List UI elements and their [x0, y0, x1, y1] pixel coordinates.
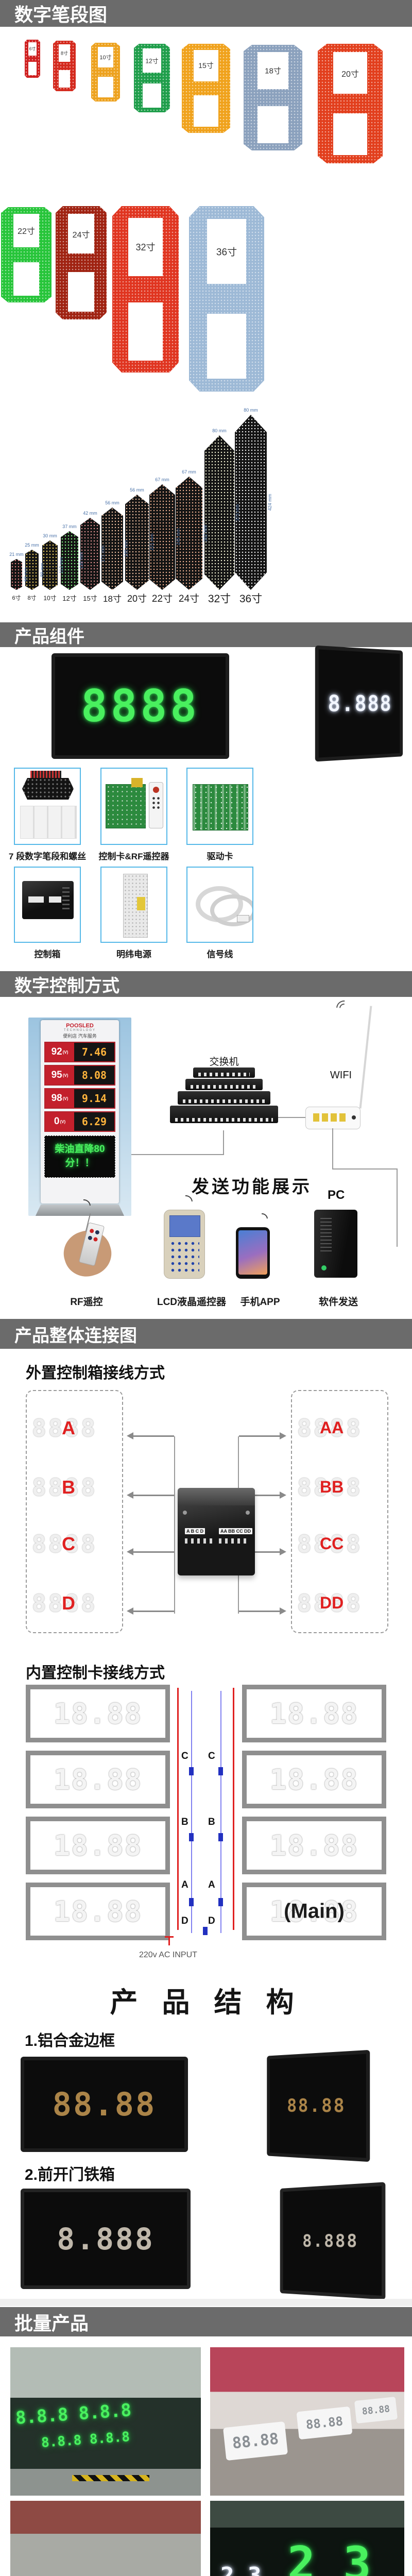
- bar-width-label: 80 mm: [212, 428, 227, 433]
- digit-window: [143, 83, 161, 108]
- bar-size-label: 8寸: [27, 594, 36, 602]
- segment-digit-10in: 10寸: [91, 43, 120, 101]
- red-wire: [233, 1688, 234, 1930]
- sign-digits: 88.88: [231, 2430, 279, 2452]
- section-header-connection: 产品整体连接图: [0, 1319, 412, 1349]
- display-label-AA: AA: [320, 1418, 344, 1437]
- section-header-control: 数字控制方式: [0, 971, 412, 997]
- cabinet-label: [49, 896, 61, 903]
- fuel-grade: 0(V): [45, 1112, 74, 1131]
- bar-width-label: 30 mm: [43, 533, 57, 538]
- digit-window: [68, 272, 95, 312]
- wire-label: A: [181, 1879, 188, 1891]
- arrow-to-C: [130, 1551, 174, 1553]
- batch-photo-big-green-digits: 2 3 2 3 2 3: [210, 2501, 404, 2576]
- totem-column: POOSLED TECHNOLOGY 便利店 汽车服务 92(V) 7.46 9…: [41, 1020, 119, 1204]
- section-title: 产品组件: [14, 622, 84, 648]
- pc-tower-photo: [314, 1210, 357, 1278]
- wire-line: [278, 1117, 305, 1118]
- driver-card-image: [193, 784, 248, 831]
- section-title: 数字控制方式: [14, 972, 119, 997]
- rf-remote-image: [149, 782, 163, 828]
- digit-window: [333, 113, 367, 155]
- totem-logo-area: POOSLED TECHNOLOGY 便利店 汽车服务: [41, 1020, 119, 1039]
- chart-bar-6in: [11, 559, 22, 590]
- component-caption: 控制卡&RF遥控器: [99, 849, 169, 862]
- bar-size-label: 10寸: [43, 594, 56, 602]
- white-sign: 88.88: [296, 2406, 352, 2440]
- display-label-B: B: [62, 1477, 75, 1498]
- component-box-driver-card: [186, 768, 253, 845]
- digit-window: 24寸: [68, 214, 95, 253]
- segment-digit-8in: 8寸: [53, 41, 76, 91]
- white-led-digits: 8.888: [328, 690, 392, 717]
- send-function-title: 发送功能展示: [192, 1173, 312, 1198]
- power-wire: [165, 1936, 174, 1938]
- gas-price-totem-photo: POOSLED TECHNOLOGY 便利店 汽车服务 92(V) 7.46 9…: [28, 1018, 131, 1216]
- display-label-D: D: [62, 1592, 75, 1614]
- router-antenna: [359, 1006, 372, 1108]
- sender-label: RF遥控: [70, 1294, 102, 1308]
- bar-width-label: 67 mm: [182, 469, 196, 474]
- bar-height-label: 135 mm: [79, 552, 84, 569]
- component-caption: 控制箱: [35, 947, 61, 960]
- remote-button: [93, 1237, 98, 1242]
- digit-size-label: 24寸: [73, 228, 90, 240]
- switch-ports: [191, 1085, 257, 1089]
- bar-height-label: 89 mm: [40, 563, 45, 577]
- digit-window: 10寸: [98, 47, 113, 67]
- arrow-to-A: [130, 1435, 174, 1437]
- segment-digit-20in: 20寸: [318, 44, 383, 163]
- bar-size-label: 20寸: [127, 591, 147, 605]
- wire-connector: [189, 1833, 194, 1841]
- switch-unit: [170, 1106, 278, 1123]
- digit-size-label: 22寸: [18, 224, 35, 236]
- wire-label: C: [181, 1751, 188, 1762]
- wire-line: [223, 1130, 224, 1155]
- router-led: [352, 1115, 356, 1120]
- pc-label: PC: [328, 1188, 345, 1202]
- led-digits: 8.8.8 8.8.8: [15, 2400, 132, 2429]
- display-panel: 18.88: [26, 1751, 170, 1808]
- lcd-remote-photo: [164, 1210, 205, 1279]
- wire-label: B: [208, 1817, 215, 1828]
- wifi-router-image: [305, 1107, 360, 1129]
- control-card-image: [106, 784, 146, 828]
- remote-button: [153, 787, 159, 793]
- power-input-label: 220v AC INPUT: [139, 1951, 197, 1960]
- network-switch-stack: [170, 1067, 278, 1130]
- component-caption: 明纬电源: [116, 947, 151, 960]
- section-title: 数字笔段图: [14, 0, 107, 27]
- chart-bar-36in: [235, 415, 267, 590]
- display-row-AA: 8888 AA: [297, 1414, 380, 1448]
- display-row-DD: 8888 DD: [297, 1589, 380, 1623]
- segment-digit-24in: 24寸: [56, 206, 107, 319]
- wire-label: C: [208, 1751, 215, 1762]
- switch-ports: [198, 1073, 250, 1076]
- digit-size-label: 10寸: [99, 53, 111, 61]
- bar-width-label: 37 mm: [62, 524, 77, 529]
- wire-trunk-left: [174, 1436, 175, 1614]
- fuel-price: 8.08: [74, 1066, 114, 1084]
- component-box-control-cabinet: [14, 867, 81, 943]
- wire-label: D: [208, 1916, 215, 1927]
- green-led-display: 8888: [51, 653, 229, 759]
- power-supply-image: [123, 874, 148, 938]
- internal-wiring-title: 内置控制卡接线方式: [26, 1660, 165, 1683]
- fuel-price: 6.29: [74, 1112, 114, 1131]
- switch-unit: [178, 1091, 270, 1105]
- structure-sub1: 1.铝合金边框: [25, 2028, 115, 2050]
- switch-ports: [183, 1099, 265, 1103]
- display-label-A: A: [62, 1417, 75, 1439]
- panel-digits: 18.88: [54, 1829, 143, 1862]
- rj45-connector: [237, 915, 249, 922]
- segment-digit-15in: 15寸: [182, 44, 230, 133]
- batch-photo-amber-digits: 3.2 1 8.8 3.2 1 8.8: [10, 2501, 201, 2576]
- section-title: 产品整体连接图: [14, 1321, 137, 1347]
- switch-label: 交换机: [209, 1054, 238, 1068]
- component-caption: 驱动卡: [207, 849, 233, 862]
- display-row-B: 8888 B: [32, 1473, 114, 1507]
- display-label-BB: BB: [320, 1478, 344, 1497]
- fuel-price: 7.46: [74, 1043, 114, 1061]
- wire-connector: [218, 1833, 223, 1841]
- panel-digits: 18.88: [54, 1764, 143, 1796]
- bar-width-label: 80 mm: [244, 408, 258, 413]
- bar-width-label: 56 mm: [105, 500, 119, 505]
- unlit-digits: 8.888: [57, 2222, 154, 2257]
- product-detail-page: 数字笔段图 6寸 8寸 10寸 12寸 15寸 18寸 20寸 22寸 24寸 …: [0, 0, 412, 2576]
- iron-box-front-photo: 8.888: [21, 2189, 191, 2289]
- panel-digits: 18.88: [270, 1698, 359, 1730]
- led-message-line1: 柴油直降80: [45, 1141, 115, 1155]
- remote-button: [89, 1228, 94, 1233]
- fuel-grade: 95(V): [45, 1066, 74, 1084]
- ports-right: [219, 1538, 248, 1544]
- white-sign: 88.88: [223, 2421, 288, 2461]
- wire-connector: [218, 1898, 223, 1906]
- divider: [0, 2299, 412, 2306]
- digit-size-label: 8寸: [61, 50, 68, 57]
- price-row: 0(V) 6.29: [44, 1111, 115, 1132]
- screw-bags-image: [20, 806, 77, 839]
- screw: [183, 1511, 187, 1515]
- segment-digit-12in: 12寸: [134, 44, 170, 112]
- lcd-screen: [169, 1215, 200, 1237]
- unlit-digits: 8.888: [302, 2230, 358, 2251]
- external-wiring-title: 外置控制箱接线方式: [26, 1360, 165, 1383]
- white-sign: 88.88: [354, 2397, 398, 2424]
- totem-brand: POOSLED: [41, 1023, 119, 1029]
- component-box-signal-cable: [186, 867, 253, 943]
- remote-buttons: [151, 796, 161, 809]
- remote-button: [88, 1235, 93, 1241]
- digit-window: 32寸: [128, 218, 163, 276]
- bar-height-label: 262 mm: [203, 525, 208, 542]
- wire-connector: [189, 1767, 194, 1775]
- component-caption: 信号线: [207, 947, 233, 960]
- bar-size-label: 12寸: [62, 593, 76, 603]
- wire-connector: [203, 1927, 208, 1935]
- aluminum-frame-side-photo: 88.88: [267, 2050, 370, 2162]
- display-panel-main: 18.88 (Main): [242, 1883, 386, 1940]
- bar-height-label: 221 mm: [149, 534, 154, 551]
- digit-window: 8寸: [59, 44, 71, 62]
- phone-screen: [238, 1230, 267, 1275]
- price-row: 98(V) 9.14: [44, 1088, 115, 1109]
- aluminum-frame-front-photo: 88.88: [21, 2057, 188, 2152]
- switch-unit: [185, 1079, 263, 1090]
- rf-remote-photo: [61, 1213, 120, 1278]
- digit-window: 18寸: [257, 52, 288, 89]
- totem-brand-sub: TECHNOLOGY: [41, 1029, 119, 1032]
- bar-size-label: 32寸: [208, 590, 231, 606]
- digit-size-label: 32寸: [135, 240, 155, 253]
- led-digits: 2 3: [287, 2537, 371, 2576]
- bar-size-label: 18寸: [103, 591, 122, 604]
- bar-size-label: 22寸: [152, 591, 173, 605]
- port-label-left: A B C D: [185, 1528, 205, 1534]
- screw: [246, 1511, 250, 1515]
- segment-digit-6in: 6寸: [25, 40, 40, 78]
- rf-module-image: [131, 778, 143, 787]
- arrow-to-D: [130, 1611, 174, 1612]
- panel-digits: 18.88: [270, 1829, 359, 1862]
- segment-digit-32in: 32寸: [112, 206, 179, 372]
- display-label-C: C: [62, 1533, 75, 1555]
- wire-line: [397, 1168, 398, 1247]
- display-row-A: 8888 A: [32, 1414, 114, 1448]
- digit-window: 12寸: [143, 48, 161, 73]
- component-caption: 7 段数字笔段和螺丝: [9, 849, 86, 862]
- wifi-label: WIFI: [330, 1070, 352, 1081]
- digit-window: [13, 262, 40, 296]
- wire-label: A: [208, 1879, 215, 1891]
- totem-led-message: 柴油直降80 分！！: [44, 1136, 115, 1178]
- digit-window: [59, 70, 71, 88]
- display-panel: 18.88: [26, 1685, 170, 1742]
- digit-window: [128, 302, 163, 361]
- section-header-segment-map: 数字笔段图: [0, 0, 412, 27]
- digit-window: [98, 77, 113, 97]
- bar-width-label: 67 mm: [155, 477, 169, 482]
- bar-size-label: 24寸: [179, 591, 199, 605]
- bar-height-label: 424 mm: [267, 494, 272, 511]
- structure-title: 产 品 结 构: [0, 1979, 412, 2020]
- fuel-grade: 98(V): [45, 1089, 74, 1108]
- wire-connector: [189, 1898, 194, 1906]
- display-panel: 18.88: [242, 1685, 386, 1742]
- pc-vents: [320, 1218, 332, 1254]
- digit-size-label: 20寸: [341, 67, 359, 79]
- arrow-to-B: [130, 1495, 174, 1496]
- cabinet-label: [28, 896, 44, 903]
- digit-size-label: 15寸: [198, 60, 214, 71]
- bar-height-label: 112 mm: [59, 557, 64, 573]
- led-digits: 2 3: [220, 2563, 261, 2576]
- digit-window: 20寸: [333, 52, 367, 94]
- segment-digit-22in: 22寸: [1, 207, 51, 302]
- segment-digit-36in: 36寸: [189, 206, 264, 392]
- digit-size-label: 6寸: [29, 46, 36, 52]
- display-panel: 18.88: [242, 1817, 386, 1874]
- fuel-grade: 92(V): [45, 1043, 74, 1061]
- led-digits: 8.8.8 8.8.8: [41, 2429, 130, 2451]
- control-box-top-face: [178, 1488, 255, 1505]
- digit-window: [207, 314, 246, 379]
- digit-window: 36寸: [207, 219, 246, 284]
- component-box-segment-module: [14, 768, 81, 845]
- sign-digits: 88.88: [362, 2403, 390, 2417]
- digit-size-label: 12寸: [145, 56, 158, 65]
- display-panel: 18.88: [26, 1817, 170, 1874]
- wire-line: [332, 1128, 333, 1170]
- main-panel-label: (Main): [284, 1900, 345, 1923]
- port-label-right: AA BB CC DD: [219, 1528, 252, 1534]
- wire-connector: [218, 1767, 223, 1775]
- digit-window: 22寸: [13, 214, 40, 247]
- digit-window: [28, 62, 37, 75]
- iron-box-side-photo: 8.888: [280, 2182, 386, 2299]
- led-message-line2: 分！！: [45, 1155, 115, 1169]
- price-row: 95(V) 8.08: [44, 1065, 115, 1086]
- panel-digits: 18.88: [54, 1698, 143, 1730]
- bar-size-label: 6寸: [12, 594, 21, 602]
- component-box-power-supply: [100, 867, 167, 943]
- segment-digit-18in: 18寸: [244, 45, 302, 150]
- panel-digits: 18.88: [54, 1895, 143, 1928]
- arrow-to-AA: [239, 1435, 283, 1437]
- bar-width-label: 56 mm: [130, 487, 144, 493]
- bar-height-label: 245 mm: [176, 529, 181, 546]
- blue-wire: [220, 1691, 221, 1933]
- hazard-strip: [72, 2475, 149, 2481]
- fuel-price: 9.14: [74, 1089, 114, 1108]
- bar-width-label: 21 mm: [9, 552, 24, 557]
- bar-width-label: 25 mm: [25, 543, 39, 548]
- smartphone-photo: [236, 1227, 270, 1279]
- ports-left: [185, 1538, 214, 1544]
- digit-window: [257, 106, 288, 143]
- display-row-BB: 8888 BB: [297, 1473, 380, 1507]
- cabinet-vents: [62, 887, 70, 911]
- switch-unit: [193, 1067, 255, 1078]
- display-row-CC: 8888 CC: [297, 1530, 380, 1564]
- blue-wire: [191, 1691, 192, 1933]
- digit-size-label: 18寸: [265, 65, 281, 76]
- batch-photo-green-panels: 8.8.8 8.8.8 8.8.8 8.8.8: [10, 2347, 201, 2496]
- control-cabinet-image: [22, 881, 74, 919]
- control-box-photo: A B C D AA BB CC DD: [178, 1488, 255, 1575]
- arrow-to-DD: [239, 1611, 283, 1612]
- wire-line: [332, 1168, 397, 1170]
- unlit-digits: 88.88: [53, 2086, 157, 2123]
- pc-power-led: [321, 1265, 327, 1270]
- red-wire: [177, 1688, 179, 1930]
- wire-label: D: [181, 1916, 188, 1927]
- display-row-D: 8888 D: [32, 1589, 114, 1623]
- batch-photo-white-signs: 88.88 88.88 88.88: [210, 2347, 404, 2496]
- display-panel: 18.88: [242, 1751, 386, 1808]
- green-led-digits: 8888: [81, 681, 200, 732]
- white-led-display: 8.888: [315, 646, 403, 762]
- remote-button: [95, 1230, 100, 1235]
- display-label-CC: CC: [320, 1534, 344, 1553]
- switch-ports: [175, 1118, 273, 1122]
- price-row: 92(V) 7.46: [44, 1042, 115, 1062]
- size-comparison-chart: 21 mm 25 mm 30 mm 37 mm 42 mm 56 mm 56 m…: [0, 402, 412, 629]
- bar-height-label: 171 mm: [100, 546, 106, 563]
- bar-height-label: 373 mm: [235, 504, 240, 521]
- psu-sticker: [137, 897, 145, 910]
- sign-digits: 88.88: [305, 2414, 344, 2432]
- wire-label: B: [181, 1817, 188, 1828]
- digit-window: 15寸: [194, 50, 219, 81]
- wires-image: [30, 771, 61, 778]
- bar-size-label: 15寸: [83, 593, 97, 603]
- display-row-C: 8888 C: [32, 1530, 114, 1564]
- unlit-digits: 88.88: [287, 2095, 346, 2116]
- section-header-components: 产品组件: [0, 622, 412, 647]
- digit-window: [194, 95, 219, 127]
- chart-bar-32in: [204, 435, 234, 590]
- structure-sub2: 2.前开门铁箱: [25, 2162, 115, 2184]
- component-box-control-card: [100, 768, 167, 845]
- segment-module-image: [22, 778, 74, 800]
- bar-size-label: 36寸: [239, 590, 262, 606]
- rf-signal-icon: [254, 1211, 270, 1227]
- display-label-DD: DD: [320, 1594, 344, 1613]
- section-header-batch: 批量产品: [0, 2307, 412, 2336]
- bar-height-label: 68 mm: [23, 567, 28, 582]
- bar-height-label: 195 mm: [124, 540, 129, 557]
- digit-window: 6寸: [28, 42, 37, 56]
- panel-digits: 18.88: [270, 1764, 359, 1796]
- digit-size-label: 36寸: [216, 245, 237, 259]
- sender-label: LCD液晶遥控器: [157, 1294, 226, 1308]
- sender-label: 手机APP: [240, 1294, 280, 1308]
- section-title: 批量产品: [14, 2309, 89, 2335]
- wire-line: [131, 1154, 224, 1155]
- display-panel: 18.88: [26, 1883, 170, 1940]
- sender-label: 软件发送: [319, 1294, 358, 1308]
- router-ports: [313, 1113, 346, 1122]
- keypad: [169, 1240, 199, 1273]
- bar-width-label: 42 mm: [83, 511, 97, 516]
- totem-tagline: 便利店 汽车服务: [41, 1032, 119, 1039]
